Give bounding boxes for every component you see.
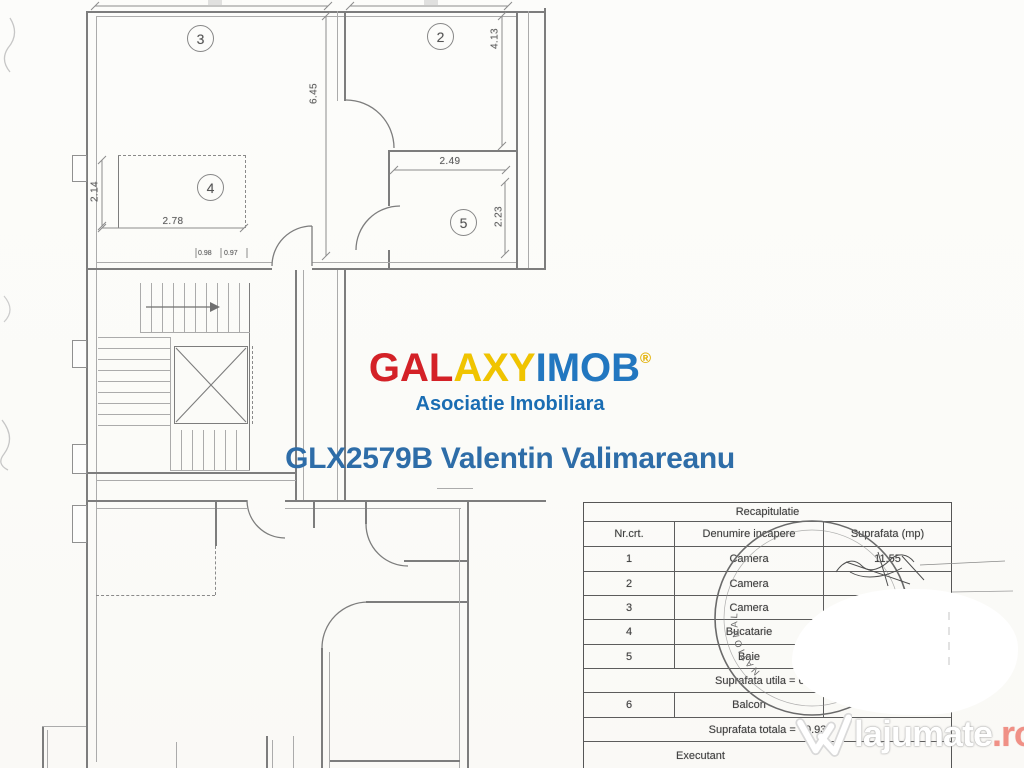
logo-imob: IMOB <box>536 346 640 390</box>
logo-axy: AXY <box>453 346 535 390</box>
watermark-logo-icon <box>795 705 852 763</box>
agency-subtitle: Asociatie Imobiliara <box>330 393 690 416</box>
agent-reference-line: GLX2579B Valentin Valimareanu <box>250 442 770 476</box>
signature-scribble <box>836 552 1005 586</box>
lajumate-watermark: lajumate.ro <box>795 703 1024 765</box>
galaxyimob-logo: GALAXYIMOB® <box>330 348 690 388</box>
scanned-floor-plan-page: 6.45 4.13 2.49 2.23 2.14 2.78 0.98 0.97 … <box>0 0 1024 768</box>
logo-gal: GAL <box>369 346 453 390</box>
watermark-tld: .ro <box>992 713 1024 755</box>
logo-registered-icon: ® <box>640 350 651 367</box>
watermark-name: lajumate <box>854 713 992 755</box>
